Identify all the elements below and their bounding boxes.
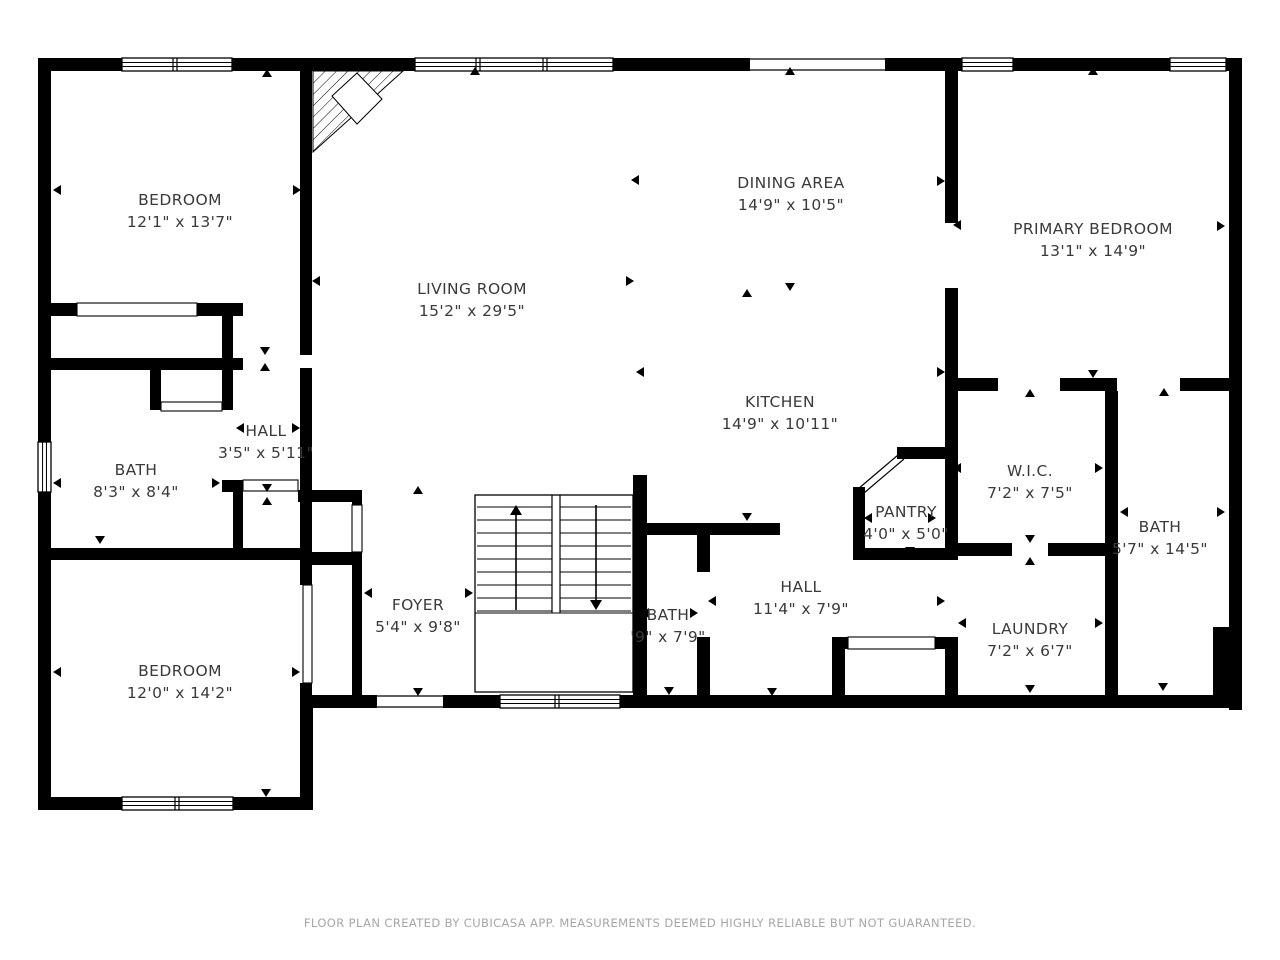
room-dimensions: 4'0" x 5'0" [863, 525, 949, 543]
measure-arrow-icon [1025, 389, 1035, 397]
footer-disclaimer: FLOOR PLAN CREATED BY CUBICASA APP. MEAS… [0, 916, 1280, 930]
measure-arrow-icon [364, 588, 372, 598]
room-dimensions: 13'1" x 14'9" [1040, 242, 1146, 260]
room-label-kitchen: KITCHEN14'9" x 10'11" [722, 393, 838, 433]
room-dimensions: 15'2" x 29'5" [419, 302, 525, 320]
measure-arrow-icon [937, 596, 945, 606]
measure-arrow-icon [413, 486, 423, 494]
measure-arrow-icon [413, 688, 423, 696]
room-label-pantry: PANTRY4'0" x 5'0" [863, 503, 949, 543]
measure-arrow-icon [708, 596, 716, 606]
room-name: PANTRY [875, 503, 937, 521]
measure-arrow-icon [1159, 388, 1169, 396]
measure-arrow-icon [937, 367, 945, 377]
room-label-hall-big: HALL11'4" x 7'9" [753, 578, 849, 618]
room-dimensions: 5'7" x 14'5" [1112, 540, 1208, 558]
measure-arrow-icon [958, 618, 966, 628]
closet-door-icon [161, 402, 222, 411]
room-dimensions: 7'2" x 7'5" [987, 484, 1073, 502]
room-name: KITCHEN [745, 393, 815, 411]
room-name: HALL [245, 422, 286, 440]
measure-arrow-icon [1095, 463, 1103, 473]
measure-arrow-icon [260, 363, 270, 371]
measure-arrow-icon [1025, 685, 1035, 693]
window-icon [122, 58, 232, 71]
closet-door-icon [303, 585, 312, 683]
measure-arrow-icon [690, 608, 698, 618]
room-dimensions: 11'4" x 7'9" [753, 600, 849, 618]
room-dimensions: 14'9" x 10'5" [738, 196, 844, 214]
room-name: LIVING ROOM [417, 280, 527, 298]
room-name: BATH [1139, 518, 1182, 536]
measure-arrow-icon [260, 347, 270, 355]
measure-arrow-icon [293, 185, 301, 195]
room-dimensions: 14'9" x 10'11" [722, 415, 838, 433]
window-icon [962, 58, 1013, 71]
window-icon [122, 797, 233, 810]
fireplace-icon [313, 71, 403, 152]
measure-arrow-icon [53, 478, 61, 488]
room-name: PRIMARY BEDROOM [1013, 220, 1173, 238]
closet-door-icon [77, 303, 197, 316]
measure-arrow-icon [1025, 535, 1035, 543]
room-name: LAUNDRY [992, 620, 1069, 638]
room-label-bedroom-top-left: BEDROOM12'1" x 13'7" [127, 191, 233, 231]
room-label-foyer: FOYER5'4" x 9'8" [375, 596, 461, 636]
room-name: BEDROOM [138, 662, 222, 680]
room-label-bedroom-bottom-left: BEDROOM12'0" x 14'2" [127, 662, 233, 702]
room-name: BATH [647, 606, 690, 624]
room-label-laundry: LAUNDRY7'2" x 6'7" [987, 620, 1073, 660]
room-label-wic: W.I.C.7'2" x 7'5" [987, 462, 1073, 502]
room-dimensions: 3'5" x 5'11" [218, 444, 314, 462]
window-icon [1170, 58, 1226, 71]
floor-plan-svg: BEDROOM12'1" x 13'7"LIVING ROOM15'2" x 2… [0, 0, 1280, 960]
measure-arrow-icon [312, 276, 320, 286]
measure-arrow-icon [1217, 221, 1225, 231]
measure-arrow-icon [95, 536, 105, 544]
measure-arrow-icon [212, 478, 220, 488]
floor-plan-canvas: BEDROOM12'1" x 13'7"LIVING ROOM15'2" x 2… [0, 0, 1280, 960]
window-icon [500, 695, 620, 708]
measure-arrow-icon [864, 513, 872, 523]
room-dimensions: 8'3" x 8'4" [93, 483, 179, 501]
measure-arrow-icon [292, 423, 300, 433]
room-label-dining-area: DINING AREA14'9" x 10'5" [737, 174, 844, 214]
room-dimensions: 12'1" x 13'7" [127, 213, 233, 231]
room-label-primary-bedroom: PRIMARY BEDROOM13'1" x 14'9" [1013, 220, 1173, 260]
measure-arrow-icon [626, 276, 634, 286]
measure-arrow-icon [631, 175, 639, 185]
measure-arrow-icon [742, 513, 752, 521]
measure-arrow-icon [465, 588, 473, 598]
room-name: FOYER [392, 596, 444, 614]
room-dimensions: 7'2" x 6'7" [987, 642, 1073, 660]
window-icon [415, 58, 613, 71]
measure-arrow-icon [53, 185, 61, 195]
room-label-living-room: LIVING ROOM15'2" x 29'5" [417, 280, 527, 320]
measure-arrow-icon [1088, 370, 1098, 378]
measure-arrow-icon [1120, 507, 1128, 517]
measure-arrow-icon [742, 289, 752, 297]
measure-arrow-icon [636, 367, 644, 377]
measure-arrow-icon [1095, 618, 1103, 628]
room-dimensions: '9" x 7'9" [630, 628, 705, 646]
measure-arrow-icon [53, 667, 61, 677]
room-name: DINING AREA [737, 174, 844, 192]
measure-arrow-icon [1217, 507, 1225, 517]
measure-arrow-icon [937, 176, 945, 186]
room-label-bath-right: BATH5'7" x 14'5" [1112, 518, 1208, 558]
staircase [475, 495, 633, 692]
measure-arrow-icon [292, 667, 300, 677]
window-icon [38, 442, 51, 492]
room-labels-layer: BEDROOM12'1" x 13'7"LIVING ROOM15'2" x 2… [93, 174, 1208, 702]
closet-door-icon [848, 637, 935, 649]
room-name: HALL [780, 578, 821, 596]
room-dimensions: 5'4" x 9'8" [375, 618, 461, 636]
room-name: BATH [115, 461, 158, 479]
measure-arrow-icon [1158, 683, 1168, 691]
measure-arrow-icon [1025, 557, 1035, 565]
measure-arrow-icon [262, 497, 272, 505]
closet-door-icon [352, 505, 362, 552]
measure-arrow-icon [664, 687, 674, 695]
room-name: W.I.C. [1007, 462, 1053, 480]
measure-arrow-icon [785, 283, 795, 291]
room-name: BEDROOM [138, 191, 222, 209]
measure-arrow-icon [261, 789, 271, 797]
room-label-bath-left: BATH8'3" x 8'4" [93, 461, 179, 501]
measure-arrow-icon [236, 423, 244, 433]
measure-arrow-icon [767, 688, 777, 696]
room-dimensions: 12'0" x 14'2" [127, 684, 233, 702]
